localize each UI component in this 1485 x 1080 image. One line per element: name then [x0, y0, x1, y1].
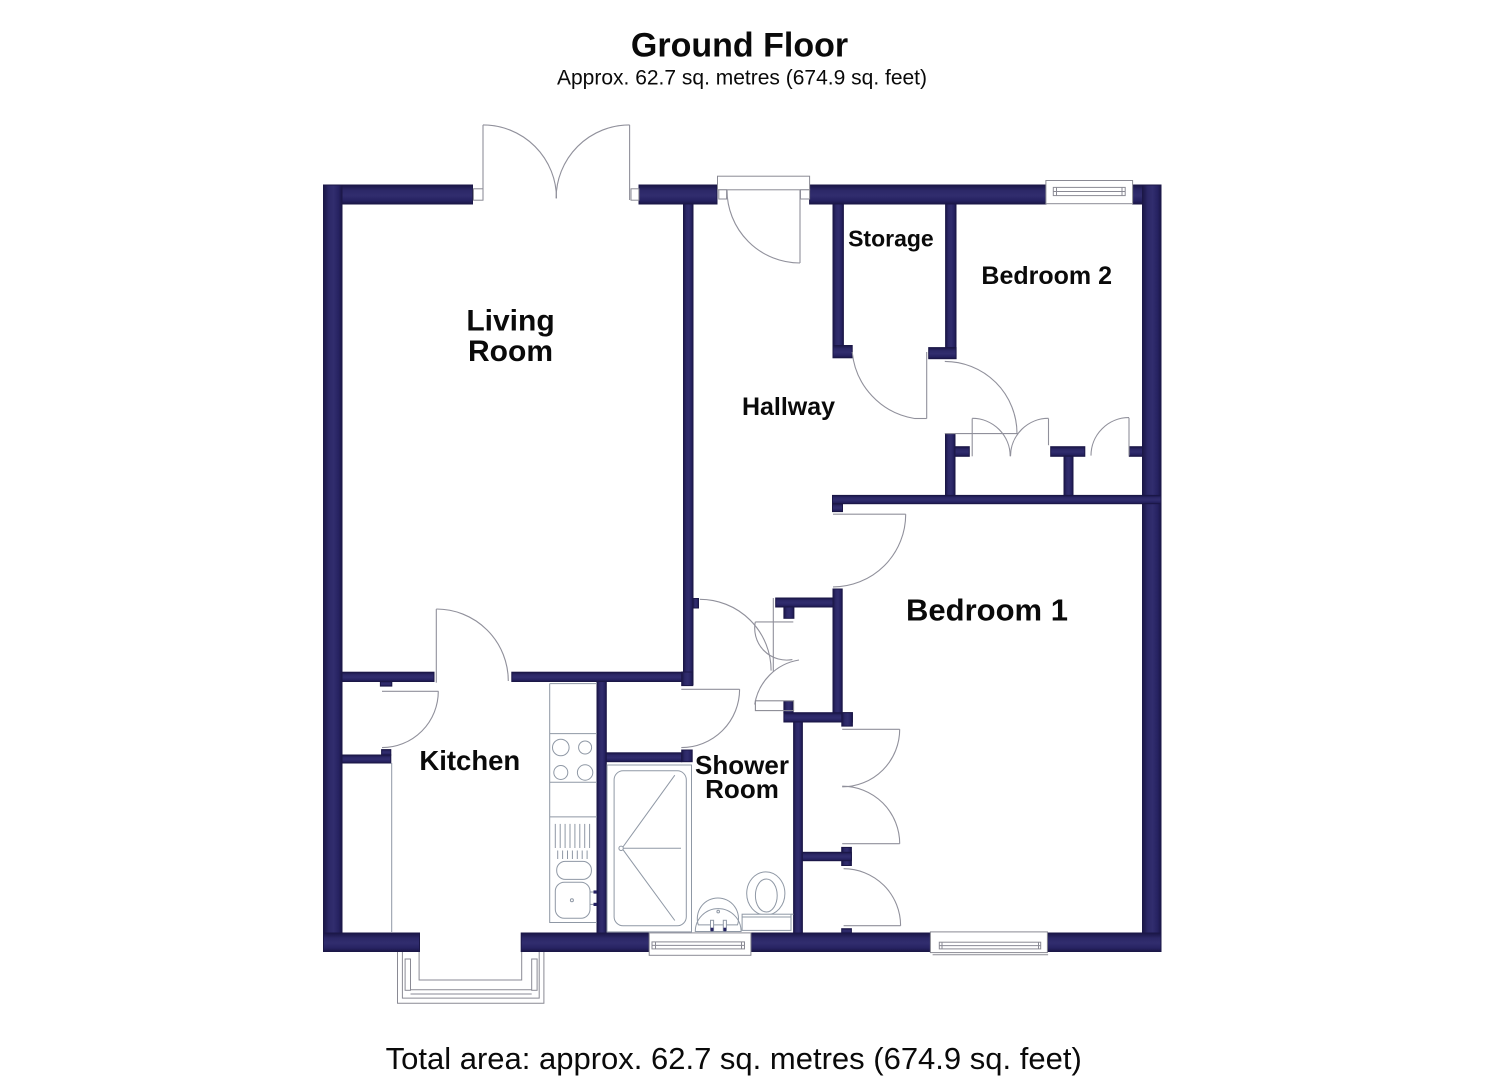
svg-text:Room: Room [468, 335, 553, 368]
svg-text:Hallway: Hallway [742, 393, 835, 421]
svg-text:Total area: approx. 62.7 sq. m: Total area: approx. 62.7 sq. metres (674… [386, 1041, 1082, 1076]
svg-text:Room: Room [705, 774, 779, 804]
svg-text:Approx. 62.7 sq. metres (674.9: Approx. 62.7 sq. metres (674.9 sq. feet) [557, 67, 927, 90]
svg-text:Ground Floor: Ground Floor [631, 27, 848, 65]
svg-text:Bedroom 1: Bedroom 1 [906, 593, 1068, 628]
svg-text:Kitchen: Kitchen [419, 745, 520, 776]
svg-text:Living: Living [466, 304, 554, 337]
svg-text:Bedroom 2: Bedroom 2 [981, 262, 1112, 290]
svg-text:Storage: Storage [848, 226, 934, 252]
